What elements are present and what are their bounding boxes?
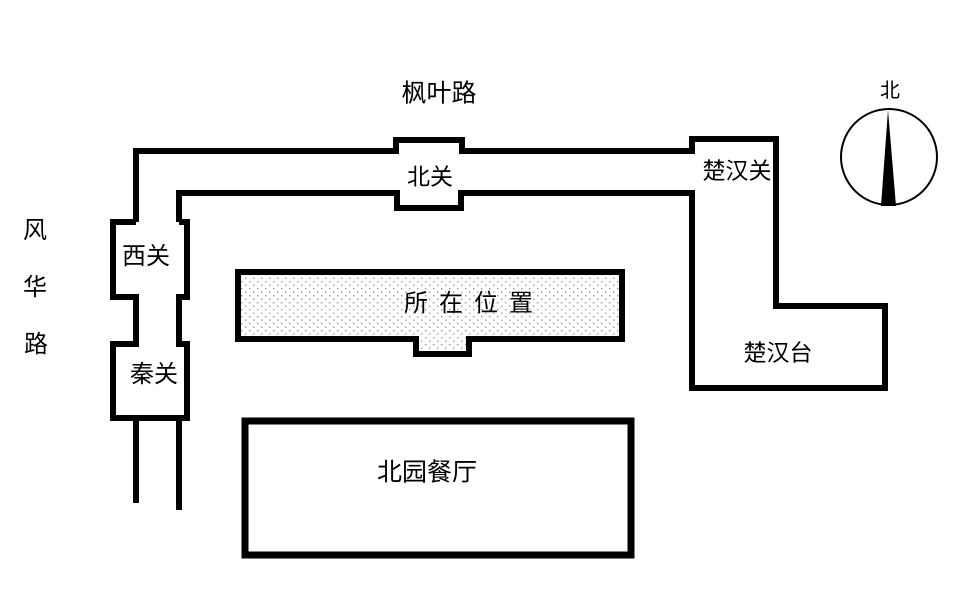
restaurant-box <box>245 421 631 555</box>
current-location-label: 所在位置 <box>404 290 544 317</box>
left-road-char-2: 路 <box>24 331 48 358</box>
west-gate-label: 西关 <box>122 243 170 270</box>
top-road-label: 枫叶路 <box>401 80 476 108</box>
left-road-char-0: 风 <box>23 218 47 244</box>
north-gate-label: 北关 <box>407 165 453 190</box>
qin-gate-label: 秦关 <box>130 361 178 388</box>
south-road-walls <box>136 415 179 510</box>
mid-corridor-walls <box>136 294 179 347</box>
campus-location-map: 枫叶路 风 华 路 北关 楚汉关 西关 秦关 所在位置 楚汉台 北园餐厅 北 <box>0 0 965 590</box>
campus-map-canvas: 枫叶路 风 华 路 北关 楚汉关 西关 秦关 所在位置 楚汉台 北园餐厅 北 <box>0 0 965 590</box>
left-road-char-1: 华 <box>23 274 47 301</box>
compass-needle-icon <box>881 110 896 206</box>
compass-north-label: 北 <box>880 79 900 102</box>
restaurant-label: 北园餐厅 <box>377 459 477 487</box>
chuhan-gate-label: 楚汉关 <box>703 159 772 184</box>
chuhan-platform-label: 楚汉台 <box>744 341 813 366</box>
